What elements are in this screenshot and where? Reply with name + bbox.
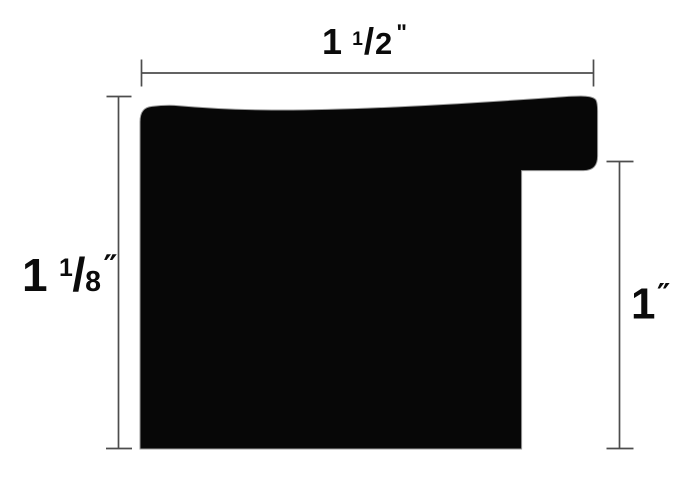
- height-dimension-label: 11/8″: [22, 252, 118, 299]
- rabbet-height-dimension-label: 1″: [631, 281, 670, 326]
- height-inch-mark: ″: [103, 249, 118, 285]
- width-inch-mark: ʺ: [396, 20, 408, 45]
- moulding-dimension-diagram: 11/2ʺ 11/8″ 1″: [0, 0, 700, 500]
- height-fraction-denominator: 8: [85, 266, 102, 298]
- moulding-profile-silhouette: [140, 96, 598, 449]
- width-whole-number: 1: [322, 21, 344, 62]
- rabbet-height-dimension-line: [607, 162, 634, 449]
- width-dimension-label: 11/2ʺ: [295, 22, 435, 61]
- width-fraction-denominator: 2: [375, 26, 394, 61]
- rabbet-whole-number: 1: [631, 279, 655, 328]
- rabbet-inch-mark: ″: [657, 278, 670, 313]
- height-whole-number: 1: [22, 249, 49, 301]
- width-dimension-line: [142, 60, 594, 87]
